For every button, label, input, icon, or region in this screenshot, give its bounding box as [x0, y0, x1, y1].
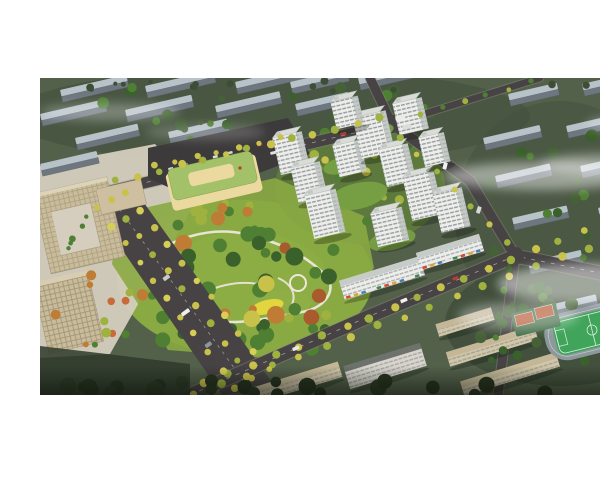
street-tree — [402, 315, 409, 322]
street-tree — [179, 260, 186, 267]
tree — [583, 82, 590, 89]
tree — [127, 83, 136, 92]
tree — [321, 77, 329, 85]
street-tree — [309, 131, 317, 139]
street-tree — [235, 330, 242, 337]
mist-cloud — [145, 124, 265, 140]
street-tree — [136, 233, 142, 239]
tree — [252, 236, 266, 250]
tree — [217, 203, 227, 213]
street-tree — [214, 150, 219, 155]
street-tree — [373, 321, 381, 329]
street-tree — [164, 241, 171, 248]
street-tree — [234, 358, 240, 364]
street-tree — [136, 207, 144, 215]
street-tree — [460, 275, 468, 283]
tree — [211, 212, 225, 226]
street-tree — [107, 223, 115, 231]
tree — [149, 80, 153, 84]
street-tree — [138, 260, 144, 266]
tree — [261, 248, 271, 258]
street-tree — [150, 278, 156, 284]
tree — [267, 306, 285, 324]
street-tree — [195, 153, 201, 159]
tree — [86, 270, 96, 280]
street-tree — [223, 151, 229, 157]
street-tree — [267, 140, 275, 148]
street-tree — [506, 87, 511, 92]
tree — [86, 84, 94, 92]
street-tree — [151, 162, 158, 169]
aerial-rendering — [40, 16, 600, 466]
street-tree — [485, 265, 493, 273]
tree — [580, 254, 587, 261]
tree — [312, 289, 326, 303]
street-tree — [486, 221, 492, 227]
street-tree — [437, 283, 445, 291]
street-tree — [108, 196, 115, 203]
tree — [227, 80, 234, 87]
street-tree — [295, 354, 302, 361]
street-tree — [272, 351, 280, 359]
tree — [259, 319, 270, 330]
street-tree — [414, 294, 421, 301]
street-tree — [454, 293, 461, 300]
street-tree — [434, 169, 440, 175]
tree — [87, 281, 94, 288]
tree — [51, 310, 61, 320]
tree — [121, 330, 129, 338]
tree — [513, 351, 523, 361]
tree — [226, 252, 241, 267]
street-tree — [488, 357, 495, 364]
mist-cloud — [40, 103, 180, 121]
street-tree — [172, 159, 177, 164]
street-tree — [122, 215, 129, 222]
tree — [309, 267, 321, 279]
street-tree — [243, 145, 250, 152]
street-tree — [391, 303, 399, 311]
street-tree — [426, 304, 433, 311]
tree — [547, 147, 559, 159]
tree — [475, 332, 487, 344]
street-tree — [554, 238, 561, 245]
tree — [289, 303, 301, 315]
street-tree — [149, 251, 156, 258]
street-tree — [151, 224, 158, 231]
tree — [285, 248, 303, 266]
street-tree — [192, 302, 199, 309]
flag — [238, 166, 241, 169]
street-tree — [504, 239, 511, 246]
tree — [543, 209, 552, 218]
street-tree — [194, 278, 200, 284]
tree — [122, 297, 130, 305]
tree — [126, 289, 134, 297]
tree — [335, 82, 346, 93]
tree — [100, 317, 108, 325]
tree — [362, 216, 371, 225]
tree — [137, 289, 148, 300]
street-tree — [178, 160, 186, 168]
street-tree — [479, 282, 487, 290]
tree — [330, 88, 336, 94]
tree — [391, 87, 397, 93]
street-tree — [506, 265, 513, 272]
tree — [83, 342, 89, 348]
street-tree — [163, 295, 170, 302]
street-tree — [581, 227, 588, 234]
street-tree — [288, 134, 296, 142]
tree — [258, 276, 275, 293]
street-tree — [462, 98, 468, 104]
street-tree — [331, 126, 339, 134]
tree — [251, 226, 259, 234]
street-tree — [256, 141, 261, 146]
street-tree — [208, 294, 214, 300]
street-tree — [414, 152, 420, 158]
tree — [586, 130, 598, 142]
street-tree — [165, 267, 172, 274]
street-tree — [204, 349, 211, 356]
street-tree — [507, 256, 515, 264]
street-tree — [467, 203, 473, 209]
aerial-rendering-figure: Aerial bird's-eye rendering of a new res… — [40, 16, 600, 466]
street-tree — [483, 92, 488, 97]
tree — [173, 220, 184, 231]
tree — [213, 239, 227, 253]
street-tree — [397, 134, 404, 141]
tree — [218, 95, 225, 102]
tree — [107, 298, 115, 306]
street-tree — [156, 169, 163, 176]
shadow-gradient — [40, 366, 600, 395]
street-tree — [355, 120, 362, 127]
street-tree — [493, 335, 499, 341]
street-tree — [318, 331, 326, 339]
tree — [327, 244, 339, 256]
street-tree — [558, 252, 567, 261]
street-tree — [222, 340, 229, 347]
tree — [527, 153, 534, 160]
tree — [553, 208, 562, 217]
street-tree — [122, 189, 129, 196]
street-tree — [178, 285, 185, 292]
street-tree — [236, 144, 242, 150]
street-tree — [134, 173, 142, 181]
street-tree — [278, 134, 284, 140]
street-tree — [440, 105, 445, 110]
street-tree — [344, 323, 351, 330]
street-tree — [94, 205, 100, 211]
street-tree — [190, 330, 197, 337]
tree — [155, 332, 170, 347]
mist-cloud — [458, 302, 578, 330]
tree — [516, 148, 527, 159]
street-tree — [347, 333, 355, 341]
street-tree — [452, 187, 458, 193]
street-tree — [375, 113, 383, 121]
tree — [92, 342, 98, 348]
street-tree — [585, 245, 593, 253]
street-tree — [123, 240, 129, 246]
tree — [242, 207, 252, 217]
tree — [101, 328, 111, 338]
street-tree — [418, 112, 424, 118]
tree — [304, 310, 320, 326]
street-tree — [250, 348, 257, 355]
street-tree — [112, 177, 119, 184]
tree — [569, 193, 580, 204]
street-tree — [528, 78, 533, 83]
tree — [191, 83, 198, 90]
tree — [321, 269, 337, 285]
tree — [499, 346, 508, 355]
tree — [113, 82, 117, 86]
street-tree — [207, 319, 215, 327]
tree — [548, 81, 556, 89]
street-tree — [221, 312, 229, 320]
tree — [289, 93, 297, 101]
street-tree — [532, 245, 540, 253]
tree — [531, 337, 541, 347]
tree — [121, 82, 126, 87]
tree — [321, 310, 331, 320]
tree — [271, 251, 281, 261]
street-tree — [323, 342, 331, 350]
street-tree — [365, 314, 374, 323]
tree — [310, 83, 317, 90]
